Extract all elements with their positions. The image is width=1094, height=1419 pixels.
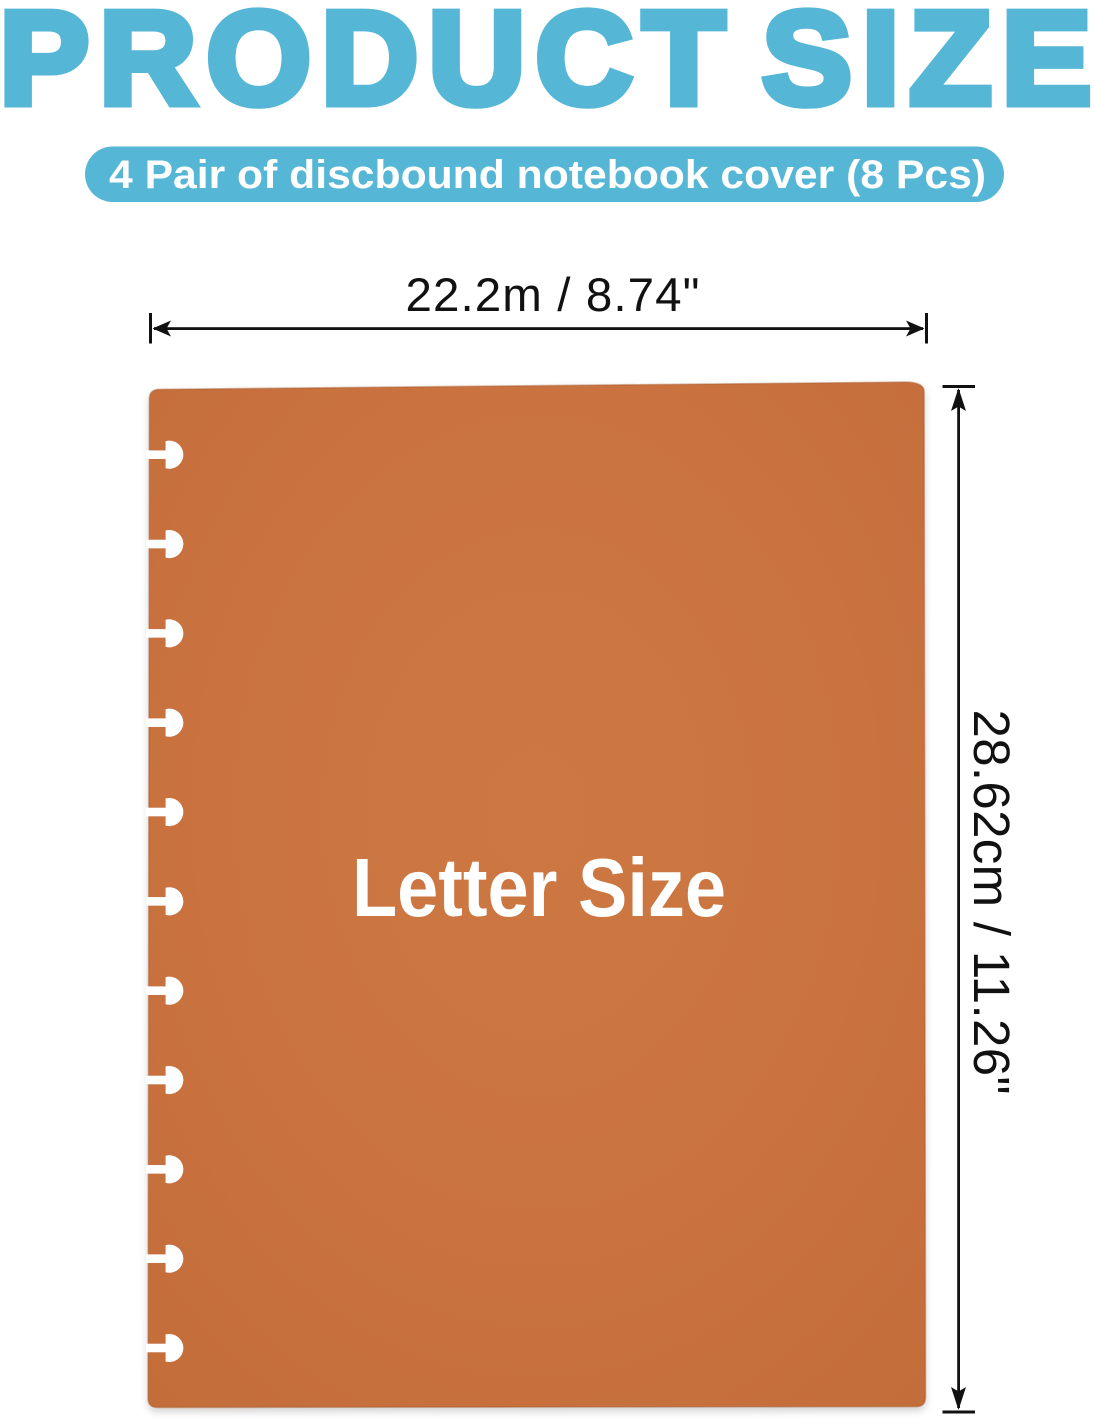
svg-text:4 Pair of discbound notebook c: 4 Pair of discbound notebook cover (8 Pc… [109, 153, 986, 197]
svg-text:PRODUCT SIZE: PRODUCT SIZE [0, 0, 1094, 132]
svg-text:Letter Size: Letter Size [352, 841, 726, 934]
svg-text:28.62cm / 11.26": 28.62cm / 11.26" [963, 710, 1020, 1095]
svg-text:22.2m / 8.74": 22.2m / 8.74" [406, 269, 700, 322]
